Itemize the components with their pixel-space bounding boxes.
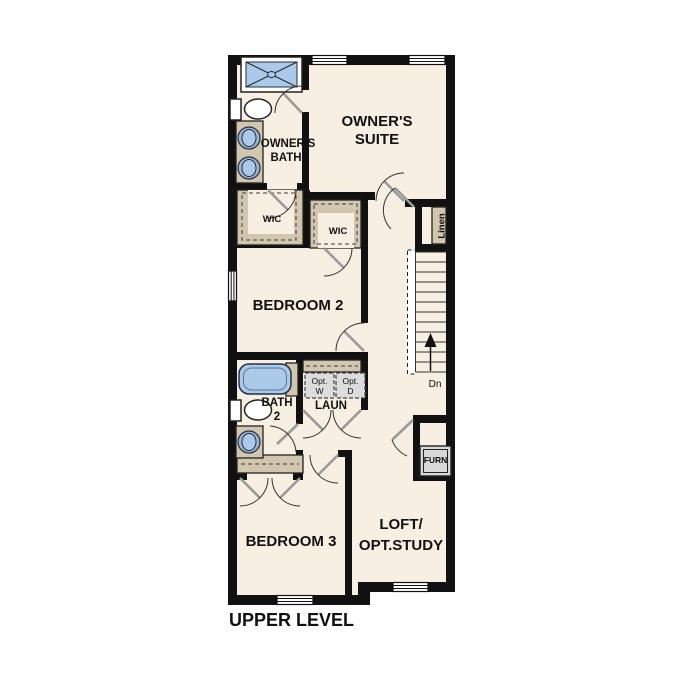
furnace-label: FURN xyxy=(424,455,448,465)
suite-window-2 xyxy=(409,56,445,65)
bath2-label-line1: BATH xyxy=(261,397,292,409)
owners-bath-label-line2: BATH xyxy=(270,152,301,164)
linen-label: Linen xyxy=(437,213,448,239)
wic-right-closet xyxy=(310,200,361,248)
plan-title: UPPER LEVEL xyxy=(229,610,354,630)
owners-bath-toilet xyxy=(230,99,272,120)
loft-window xyxy=(393,583,428,592)
washer-label-line1: Opt. xyxy=(311,376,327,386)
owners-bath-double-vanity xyxy=(236,121,263,183)
wic-right-label: WIC xyxy=(329,226,348,237)
bedroom2-label: BEDROOM 2 xyxy=(253,297,344,314)
dryer-label-line1: Opt. xyxy=(342,376,358,386)
loft-label-line1: LOFT/ xyxy=(379,516,423,533)
loft-label-line2: OPT.STUDY xyxy=(359,537,443,554)
upper-level-floor-plan: OWNER'S SUITE OWNER'S BATH WIC WIC Linen… xyxy=(0,0,687,687)
laundry-shelf xyxy=(303,360,361,372)
owners-bath-label-line1: OWNER'S xyxy=(261,138,316,150)
floor-plan-page: OWNER'S SUITE OWNER'S BATH WIC WIC Linen… xyxy=(0,0,687,687)
shower xyxy=(241,57,302,92)
bedroom3-window xyxy=(277,596,313,605)
dryer-label-line2: D xyxy=(347,386,353,396)
bedroom2-window xyxy=(229,271,237,301)
bedroom3-label: BEDROOM 3 xyxy=(246,533,337,550)
bath2-tub xyxy=(239,363,298,396)
laundry-label: LAUN xyxy=(315,400,347,412)
suite-window-1 xyxy=(312,56,347,65)
washer-label-line2: W xyxy=(315,386,323,396)
owners-suite-label-line1: OWNER'S xyxy=(341,113,412,130)
owners-suite-label-line2: SUITE xyxy=(355,131,399,148)
exterior-notch xyxy=(371,592,455,608)
bath2-label-line2: 2 xyxy=(274,411,280,423)
stairs-down-label: Dn xyxy=(429,379,442,390)
stair-railing xyxy=(408,250,416,374)
wic-left-label: WIC xyxy=(263,214,282,225)
bath2-vanity xyxy=(236,426,263,458)
